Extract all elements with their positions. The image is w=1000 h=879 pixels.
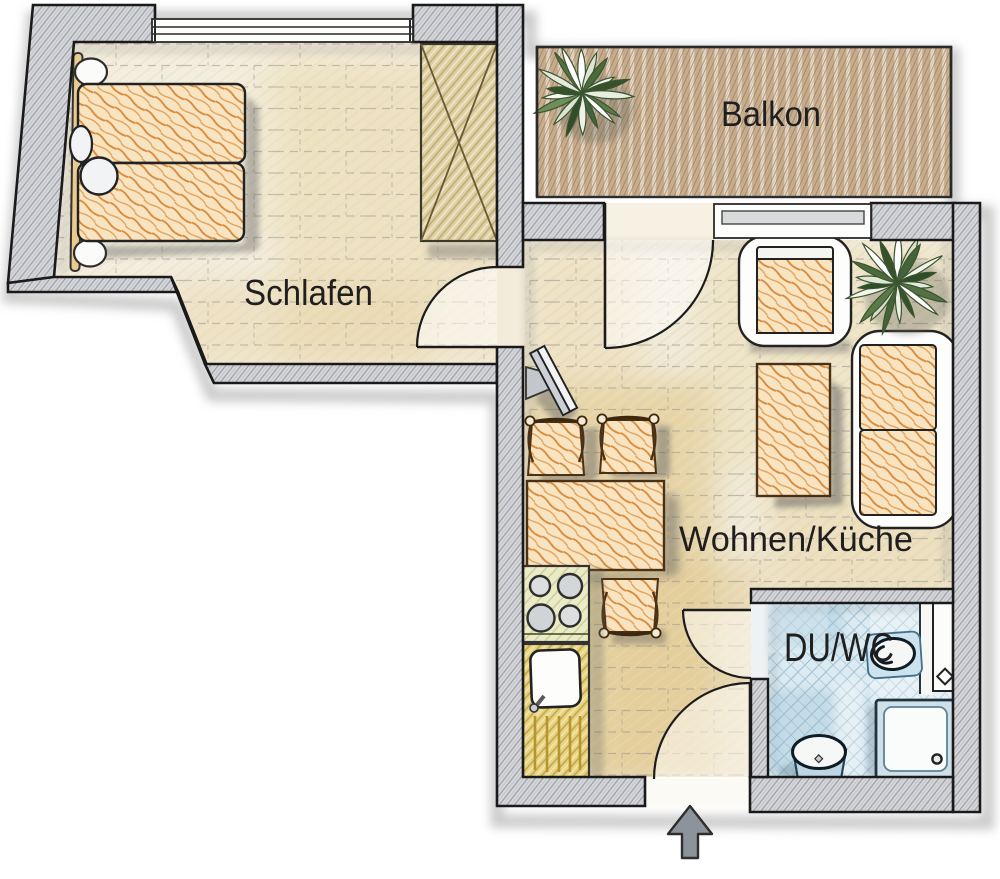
- svg-text:Schlafen: Schlafen: [244, 272, 373, 313]
- svg-text:Balkon: Balkon: [721, 95, 821, 134]
- svg-text:Wohnen/Küche: Wohnen/Küche: [679, 520, 913, 559]
- svg-text:DU/WC: DU/WC: [784, 626, 894, 670]
